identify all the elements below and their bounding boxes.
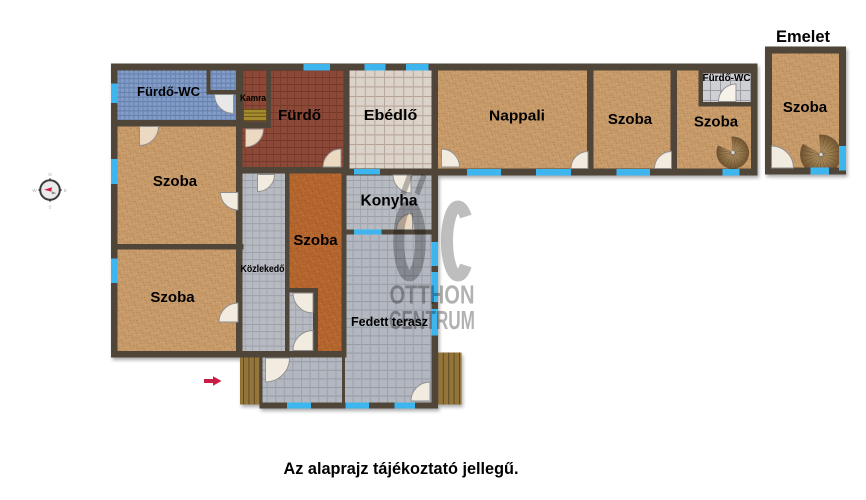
- svg-text:Nappali: Nappali: [489, 108, 545, 125]
- svg-text:S: S: [48, 205, 51, 210]
- svg-text:Szoba: Szoba: [694, 114, 739, 131]
- svg-text:Emelet: Emelet: [776, 28, 831, 46]
- svg-text:Fürdő: Fürdő: [278, 108, 321, 124]
- svg-text:Fürdő-WC: Fürdő-WC: [703, 73, 751, 84]
- svg-text:Ebédlő: Ebédlő: [364, 108, 418, 124]
- svg-text:Szoba: Szoba: [608, 111, 653, 128]
- svg-text:CENTRUM: CENTRUM: [389, 305, 475, 335]
- svg-text:Szoba: Szoba: [153, 173, 198, 190]
- svg-text:Kamra: Kamra: [240, 93, 267, 104]
- svg-text:Szoba: Szoba: [783, 99, 828, 116]
- svg-text:N: N: [48, 172, 51, 177]
- svg-text:Szoba: Szoba: [293, 232, 338, 249]
- svg-text:E: E: [64, 188, 67, 193]
- svg-text:Szoba: Szoba: [150, 289, 195, 306]
- svg-text:W: W: [32, 188, 37, 193]
- svg-text:Közlekedő: Közlekedő: [241, 264, 285, 275]
- svg-text:Az alaprajz tájékoztató jelleg: Az alaprajz tájékoztató jellegű.: [284, 460, 519, 478]
- svg-text:Fürdő-WC: Fürdő-WC: [137, 84, 201, 99]
